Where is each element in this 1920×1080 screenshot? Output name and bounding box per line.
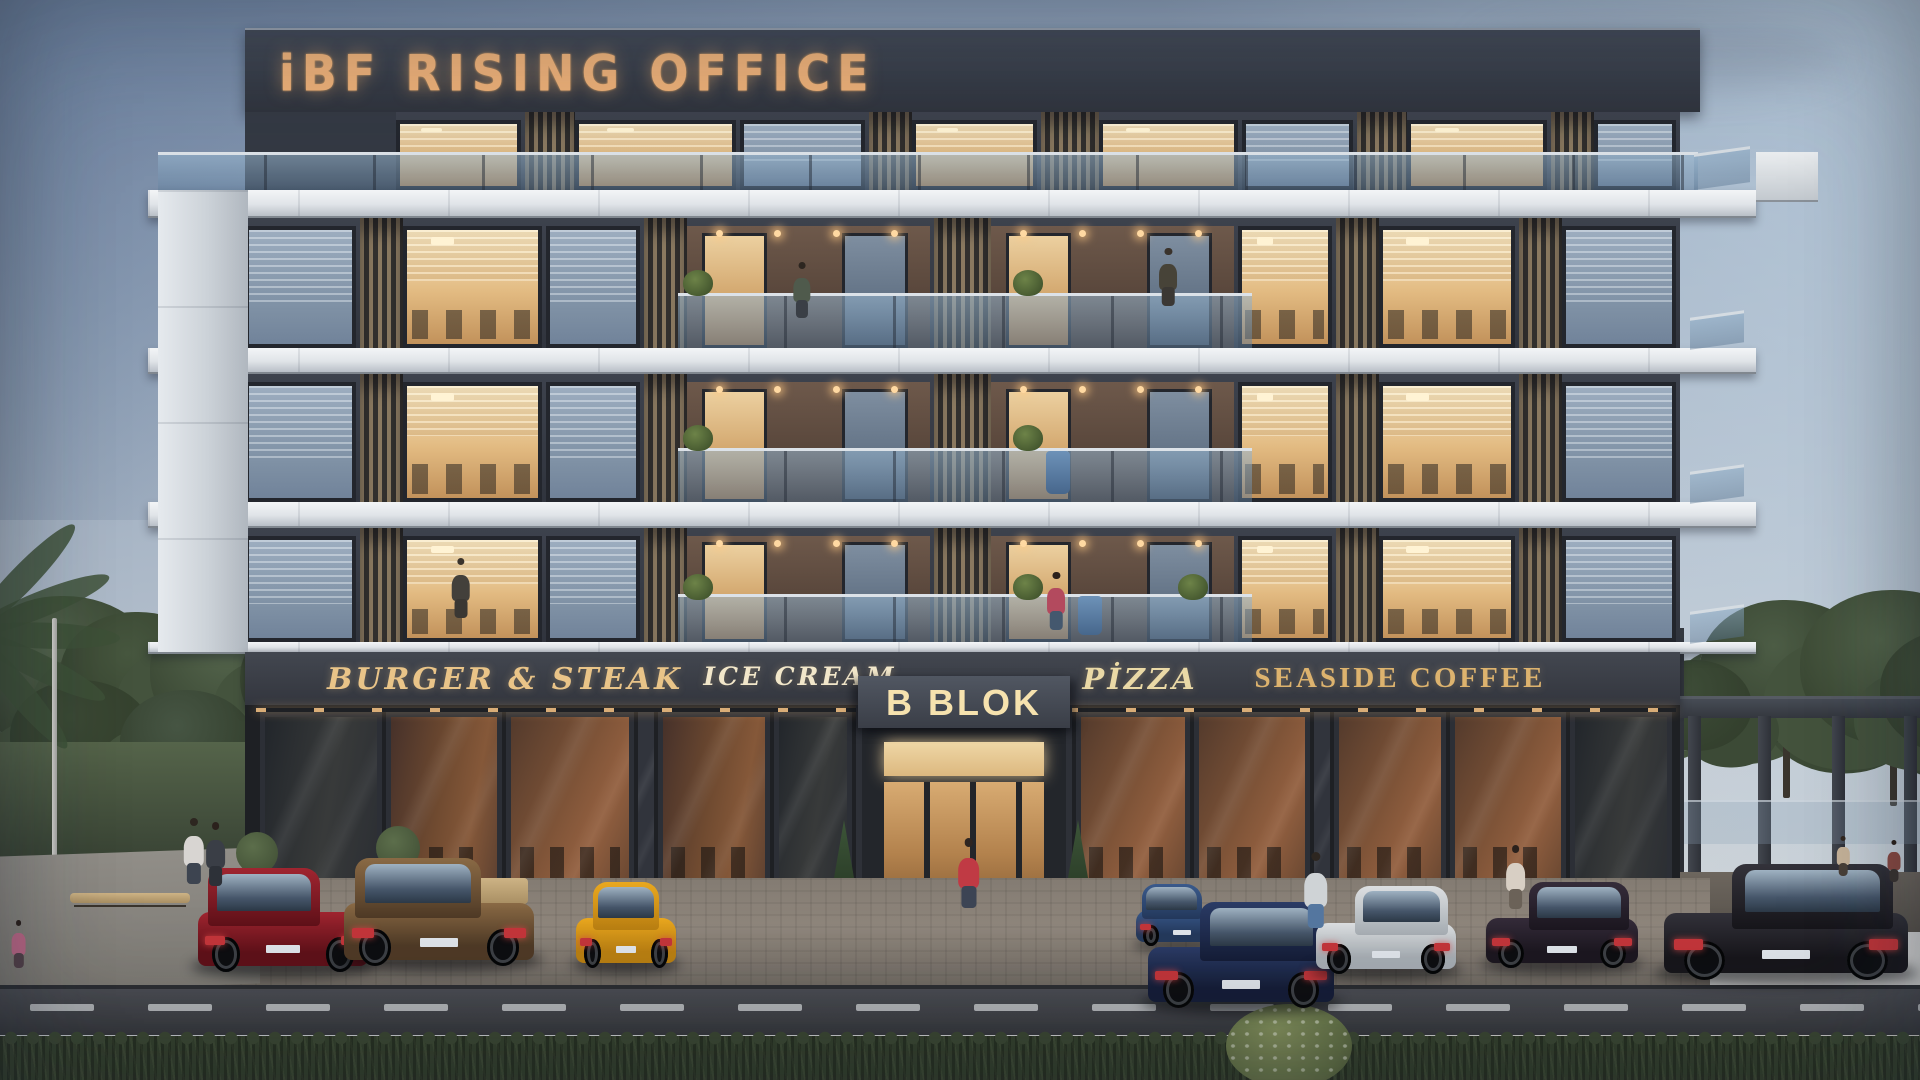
person-legs [1509, 889, 1523, 909]
pergola-column [1758, 716, 1771, 878]
car-black-sedan [1664, 864, 1908, 980]
slat-screen [1519, 374, 1562, 502]
car-license-plate [1547, 946, 1577, 953]
car-cabin [1355, 886, 1447, 935]
lane-dash [148, 1004, 212, 1011]
entrance-sign-panel: B BLOK [858, 676, 1070, 728]
car-taillight [205, 936, 225, 945]
person-balcony-woman [1046, 572, 1067, 630]
office-window-lit [1379, 226, 1516, 348]
office-window-dusk [1562, 536, 1676, 642]
balcony-plant [1013, 574, 1043, 600]
office-window-lit [1379, 536, 1516, 642]
person-office-figure-2 [1158, 248, 1179, 306]
person-torso [11, 933, 26, 954]
lane-dash [384, 1004, 448, 1011]
pergola-column [1688, 716, 1701, 878]
entrance-lit-transom [884, 742, 1044, 776]
blue-planter [1046, 451, 1070, 495]
person-torso [1159, 264, 1177, 290]
car-license-plate [1762, 950, 1811, 959]
car-rear-window [217, 874, 311, 911]
car-cabin [1529, 882, 1629, 930]
car-license-plate [616, 946, 636, 953]
floor-slab-band [148, 502, 1756, 528]
office-window-dusk [245, 536, 356, 642]
lane-dash [1800, 1004, 1864, 1011]
bench [70, 893, 190, 903]
lane-dash [1564, 1004, 1628, 1011]
car-rear-window [1363, 891, 1441, 923]
terrace-glass-rail [1684, 800, 1920, 844]
person-head [1165, 248, 1172, 255]
car-cabin [1732, 864, 1893, 929]
balcony-plant [1178, 574, 1208, 600]
office-window-lit [403, 536, 543, 642]
person-legs [961, 886, 976, 908]
person-head [1311, 852, 1320, 861]
office-floor-1 [245, 218, 1680, 348]
lane-dash [266, 1004, 330, 1011]
downlight [1079, 386, 1086, 393]
person-torso [1506, 863, 1526, 891]
person-legs [796, 300, 808, 318]
lane-dash [502, 1004, 566, 1011]
person-torso [184, 836, 204, 865]
tree-trunk [1890, 722, 1897, 806]
downlight [833, 386, 840, 393]
downlight [774, 540, 781, 547]
person-legs [1307, 904, 1323, 928]
person-head [1891, 840, 1896, 845]
lane-dash [1682, 1004, 1746, 1011]
office-window-lit [403, 226, 543, 348]
slat-screen [360, 528, 403, 642]
person-head [212, 822, 220, 830]
desk-silhouettes [412, 464, 533, 493]
car-rear-window [598, 887, 653, 918]
lane-dash [738, 1004, 802, 1011]
entrance-sign-label: B BLOK [886, 682, 1042, 723]
car-taillight [1155, 971, 1177, 981]
car-taillight [1869, 939, 1898, 949]
hedge [0, 1036, 1920, 1080]
person-head [1841, 836, 1846, 841]
car-yellow-mustang [576, 882, 676, 968]
person-legs [454, 599, 467, 618]
storefront-glass-panel [1334, 712, 1446, 902]
desk-silhouettes [1245, 609, 1324, 634]
person-sidewalk-man [1302, 852, 1329, 928]
pergola-column [1904, 716, 1917, 878]
downlight [891, 386, 898, 393]
balcony-plant [683, 425, 713, 451]
tree-trunk [1783, 721, 1790, 798]
car-taillight [1492, 938, 1510, 946]
person-head [457, 558, 464, 565]
person-head [1512, 845, 1520, 853]
person-torso [1304, 873, 1328, 906]
car-taillight [352, 928, 375, 938]
person-head [799, 262, 806, 269]
floor-slab-band [148, 348, 1756, 374]
car-cabin [593, 882, 659, 930]
office-window-dusk [1562, 382, 1676, 502]
pergola-beam [1678, 696, 1920, 718]
car-rear-window [365, 864, 470, 903]
person-legs [1162, 287, 1175, 306]
slat-screen [1336, 528, 1379, 642]
lane-dash [1446, 1004, 1510, 1011]
person-torso [1837, 847, 1849, 865]
car-rear-window [1210, 908, 1313, 946]
slat-screen [360, 374, 403, 502]
car-taillight [1674, 939, 1703, 949]
downlight [833, 540, 840, 547]
person-torso [958, 858, 980, 889]
person-terrace-1 [1836, 836, 1850, 876]
person-sidewalk-woman [1504, 845, 1527, 909]
person-legs [13, 953, 23, 968]
roof-parapet: iBF RISING OFFICE [245, 28, 1700, 112]
person-terrace-2 [1886, 840, 1901, 882]
corner-pillar-left [158, 190, 248, 652]
office-window-lit [403, 382, 543, 502]
lane-dash [620, 1004, 684, 1011]
lane-dash [856, 1004, 920, 1011]
person-legs [209, 866, 223, 886]
architectural-render: iBF RISING OFFICE BURGER & STEAKICE CREA… [0, 0, 1920, 1080]
office-window-dusk [546, 226, 640, 348]
car-taillight [1614, 938, 1632, 946]
storefront-glass-panel [658, 712, 770, 902]
person-entrance-woman [956, 838, 981, 908]
office-window-dusk [1562, 226, 1676, 348]
car-license-plate [1372, 951, 1400, 958]
office-window-dusk [245, 382, 356, 502]
desk-silhouettes [1245, 310, 1324, 340]
person-head [964, 838, 973, 847]
downlight [1079, 540, 1086, 547]
car-taillight [1322, 943, 1339, 951]
rooftop-sign: iBF RISING OFFICE [279, 44, 876, 102]
downlight [1137, 386, 1144, 393]
person-legs [187, 863, 201, 884]
person-walker-2 [204, 822, 227, 886]
downlight [1079, 230, 1086, 237]
balcony-plant [683, 574, 713, 600]
person-walker-pink [10, 920, 27, 968]
car-license-plate [266, 945, 300, 953]
person-walker-1 [182, 818, 206, 884]
downlight [774, 230, 781, 237]
downlight [891, 230, 898, 237]
person-legs [1839, 863, 1848, 876]
slat-screen [1519, 218, 1562, 348]
car-taillight [1434, 943, 1451, 951]
downlight [891, 540, 898, 547]
desk-silhouettes [412, 310, 533, 340]
downlight [774, 386, 781, 393]
desk-silhouettes [1388, 310, 1506, 340]
car-taillight [504, 928, 527, 938]
car-taillight [580, 938, 592, 946]
office-window-dusk [546, 382, 640, 502]
desk-silhouettes [412, 609, 533, 634]
shop-sign-pi-zza: PİZZA [1082, 662, 1197, 696]
storefront-glass-panel [1194, 712, 1310, 902]
shop-sign-burger-steak: BURGER & STEAK [327, 662, 683, 697]
car-license-plate [1222, 980, 1259, 988]
roof-terrace-balustrade [158, 152, 1698, 190]
car-license-plate [420, 938, 458, 947]
balcony-glass-balustrade [678, 448, 1252, 502]
person-torso [1887, 852, 1900, 870]
car-rear-window [1537, 887, 1621, 918]
car-bronze-sedan [344, 858, 534, 966]
office-window-dusk [546, 536, 640, 642]
person-head [190, 818, 198, 826]
office-window-lit [1379, 382, 1516, 502]
person-legs [1050, 611, 1063, 630]
slat-screen [1336, 374, 1379, 502]
blue-planter [1078, 596, 1102, 635]
person-torso [1047, 588, 1065, 614]
slat-screen [1519, 528, 1562, 642]
lane-dash [30, 1004, 94, 1011]
balcony-glass-balustrade [678, 594, 1252, 642]
person-head [16, 920, 22, 926]
person-torso [452, 575, 471, 601]
balcony-plant [1013, 270, 1043, 296]
shop-sign-seaside-coffee: SEASIDE COFFEE [1255, 662, 1546, 695]
office-floor-2 [245, 374, 1680, 502]
light-green-bush [1226, 1004, 1352, 1080]
downlight [1137, 540, 1144, 547]
car-white-wagon [1316, 886, 1456, 974]
car-cabin [355, 858, 480, 918]
downlight [833, 230, 840, 237]
storefront-glass-panel [638, 712, 654, 902]
balcony-plant [1013, 425, 1043, 451]
slat-screen [1336, 218, 1379, 348]
person-legs [1889, 869, 1898, 882]
car-taillight [660, 938, 672, 946]
floor-slab-band [148, 190, 1756, 218]
person-torso [793, 278, 810, 303]
desk-silhouettes [1388, 609, 1506, 634]
desk-silhouettes [1245, 464, 1324, 493]
desk-silhouettes [1388, 464, 1506, 493]
person-balcony-man [792, 262, 812, 318]
car-rear-window [1745, 870, 1880, 912]
office-window-dusk [245, 226, 356, 348]
storefront-glass-panel [1570, 712, 1672, 902]
person-head [1053, 572, 1060, 579]
person-torso [206, 840, 226, 868]
lane-dash [974, 1004, 1038, 1011]
storefront-glass-panel [1076, 712, 1190, 902]
downlight [1137, 230, 1144, 237]
annex-band-right [1756, 152, 1818, 202]
slat-screen [360, 218, 403, 348]
person-office-figure-1 [450, 558, 472, 618]
balcony-plant [683, 270, 713, 296]
